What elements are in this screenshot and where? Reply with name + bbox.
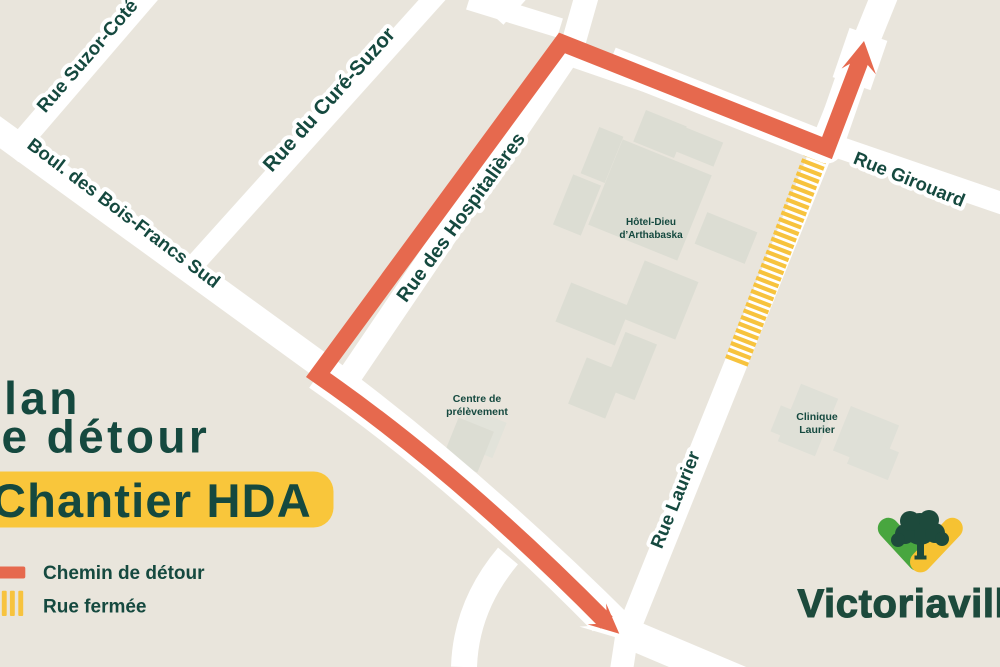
- svg-text:d’Arthabaska: d’Arthabaska: [619, 230, 683, 241]
- svg-text:Laurier: Laurier: [799, 424, 835, 436]
- svg-text:Hôtel-Dieu: Hôtel-Dieu: [626, 217, 676, 228]
- svg-text:Chantier HDA: Chantier HDA: [0, 474, 312, 527]
- svg-text:Clinique: Clinique: [796, 411, 838, 423]
- svg-text:Rue fermée: Rue fermée: [43, 597, 147, 618]
- svg-text:prélèvement: prélèvement: [446, 406, 508, 418]
- svg-text:Victoriaville: Victoriaville: [798, 582, 1000, 626]
- svg-text:Centre de: Centre de: [453, 393, 502, 405]
- svg-text:Chemin de détour: Chemin de détour: [43, 563, 205, 584]
- svg-text:de détour: de détour: [0, 411, 210, 463]
